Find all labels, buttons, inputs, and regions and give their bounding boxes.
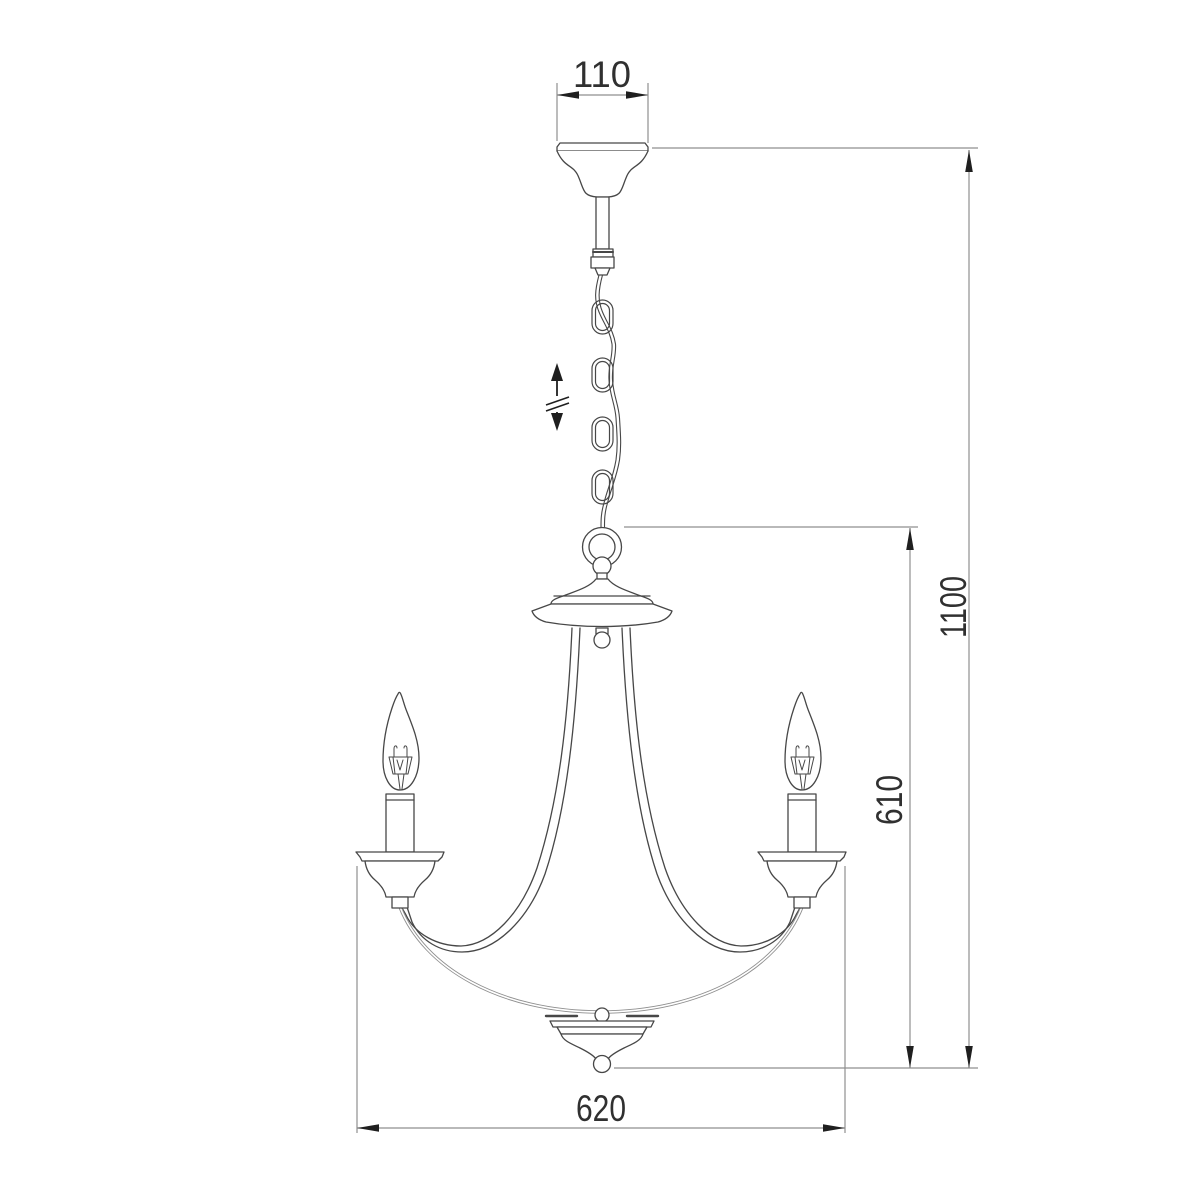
chandelier: [356, 143, 846, 1073]
flame-bulb: [383, 692, 419, 790]
ring-ball: [593, 557, 611, 575]
right-arm: [622, 628, 800, 952]
candle-cup: [356, 852, 444, 908]
cup-bell: [365, 861, 435, 897]
cord-connector: [591, 249, 614, 275]
left-arm-outer: [402, 628, 572, 946]
dimension-label-body-width: 620: [576, 1088, 626, 1129]
dimension-label-body-height: 610: [869, 775, 910, 825]
ceiling-canopy: [557, 143, 648, 197]
connector-taper: [595, 268, 610, 275]
candle-right: [758, 692, 846, 908]
chain: [592, 300, 613, 504]
saucer-tier: [557, 1027, 647, 1034]
cup-stem: [392, 897, 408, 908]
suspension-stem: [596, 197, 609, 249]
connector-body: [591, 257, 614, 268]
band-outline: [400, 907, 802, 1012]
band-fill: [400, 907, 802, 1012]
cable-line-a: [596, 275, 618, 527]
arrow-1100-bottom: [965, 1046, 973, 1068]
height-adjust-up-down-arrow-icon: [546, 363, 569, 431]
canopy-bell: [557, 151, 648, 197]
canopy-plate: [557, 143, 648, 151]
arrow-610-bottom: [906, 1046, 914, 1068]
right-arm-inner: [622, 628, 795, 952]
candle-sleeve: [386, 794, 414, 852]
technical-drawing-page: 110 1100 610 620: [0, 0, 1200, 1200]
arrow-620-right: [823, 1124, 845, 1132]
saucer-ball: [595, 1008, 609, 1022]
left-arm: [402, 628, 580, 952]
left-arm-inner: [407, 628, 580, 952]
cap-neck: [597, 573, 607, 579]
cap-disc: [532, 604, 672, 627]
hanging-ring-inner: [589, 534, 615, 560]
dimension-lines: [357, 83, 978, 1133]
candle-left: [356, 692, 444, 908]
suspension-cable: [596, 275, 621, 527]
column-ball: [594, 632, 610, 648]
up-arrowhead: [551, 363, 563, 381]
down-arrowhead: [551, 413, 563, 431]
bottom-finial-ball: [594, 1056, 611, 1073]
arrow-610-top: [906, 528, 914, 550]
dimension-label-canopy-width: 110: [573, 54, 631, 95]
chandelier-technical-drawing: 110 1100 610 620: [0, 0, 1200, 1200]
right-arm-outer: [630, 628, 800, 946]
cap-dome: [551, 579, 653, 604]
cup-saucer: [356, 852, 444, 861]
chain-link-inner: [596, 474, 610, 501]
arrow-620-left: [357, 1124, 379, 1132]
bottom-saucer: [550, 1021, 654, 1059]
dimension-label-overall-height: 1100: [933, 576, 974, 638]
bottom-band: [400, 907, 802, 1016]
chain-link-inner: [596, 421, 610, 448]
arrow-1100-top: [965, 150, 973, 172]
body-cap: [532, 579, 672, 627]
saucer-plate: [550, 1021, 654, 1027]
chain-link-inner: [596, 362, 610, 389]
